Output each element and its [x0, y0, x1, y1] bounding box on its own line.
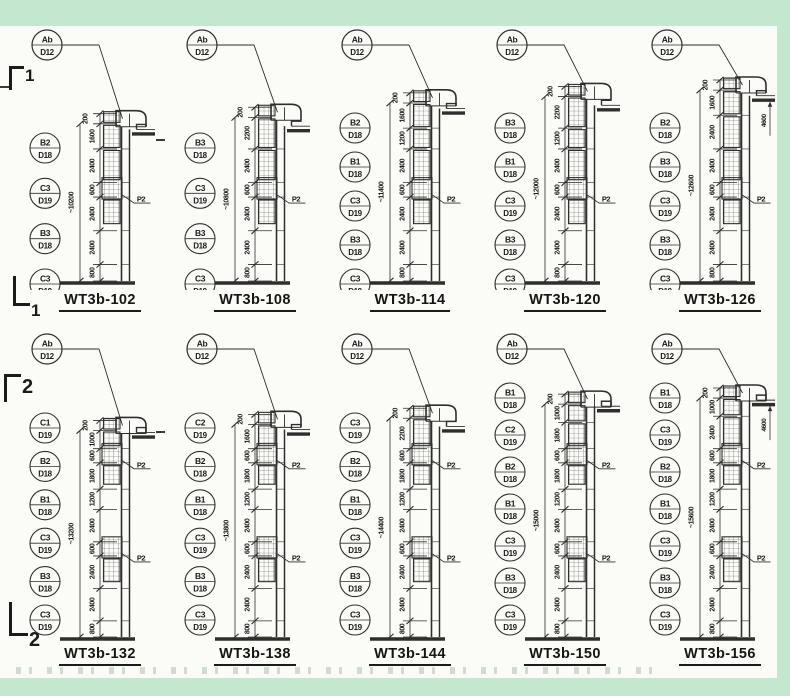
cutoff-text-remnant [16, 667, 656, 674]
dimension-text: 2400 [90, 206, 97, 220]
dimension-text: 1800 [400, 468, 407, 482]
dimension-text: 2400 [90, 158, 97, 172]
dimension-text: 600 [710, 450, 717, 461]
dimension-text: 2400 [90, 597, 97, 611]
grid-label-top-line2: D12 [195, 48, 209, 57]
hatched-block [724, 400, 741, 415]
dimension-text: 2400 [710, 240, 717, 254]
hatched-sill-block [412, 537, 432, 558]
hatched-block [724, 200, 741, 224]
bubble-leader [372, 349, 433, 413]
scanned-drawing-sheet: 1 1 2 2 2001600240060024002400800~10200P… [0, 0, 790, 696]
grid-label-left-line2: D18 [658, 131, 672, 140]
dimension-text: 2400 [245, 518, 252, 532]
dimension-text: 1200 [400, 131, 407, 145]
detail-label-p2: P2 [602, 553, 611, 562]
dimension-text: 200 [548, 86, 555, 97]
grid-label-left-line1: C3 [350, 610, 361, 620]
dimension-text: 2400 [555, 597, 562, 611]
grid-label-left-line2: D18 [658, 586, 672, 595]
dimension-text: 200 [238, 107, 245, 118]
grid-label-left-line1: C3 [505, 274, 516, 284]
hatched-sill-block [257, 537, 277, 558]
hatched-block [569, 559, 586, 582]
grid-label-left-line2: D18 [503, 170, 517, 179]
grid-label-top-line1: Ab [42, 35, 53, 45]
detail-label-p2: P2 [447, 460, 456, 469]
hatched-sill-block [722, 178, 742, 199]
grid-label-left-line2: D18 [658, 170, 672, 179]
hatched-block [259, 412, 276, 423]
dimension-text: 2400 [245, 597, 252, 611]
detail-label-p2: P2 [137, 460, 146, 469]
dimension-text: 800 [245, 267, 252, 278]
hatched-sill-block [412, 178, 432, 199]
dimension-text: 2400 [90, 565, 97, 579]
diagram-title: WT3b-108 [180, 292, 330, 312]
grid-label-left-line2: D19 [193, 431, 207, 440]
grid-label-left-line1: B3 [350, 571, 361, 581]
dimension-text: 2400 [710, 518, 717, 532]
grid-label-left-line1: B3 [660, 157, 671, 167]
grid-label-left-line1: C3 [505, 536, 516, 546]
detail-label-p2: P2 [137, 553, 146, 562]
grid-label-left-line2: D18 [503, 131, 517, 140]
grid-label-left-line2: D19 [348, 431, 362, 440]
dimension-text: 1600 [245, 429, 252, 443]
dimension-text: 1800 [555, 428, 562, 442]
diagram-title-text: WT3b-138 [214, 646, 296, 666]
section-drawing: 2001600240060024002400800~10200P2AbD12B2… [3, 28, 155, 290]
dimension-text: 600 [90, 543, 97, 554]
dimension-text: 2400 [555, 565, 562, 579]
hatched-sill-block [722, 537, 742, 558]
detail-label-p2: P2 [602, 460, 611, 469]
dimension-text: 2400 [245, 565, 252, 579]
grid-label-left-line2: D19 [38, 623, 52, 632]
grid-label-left-line2: D19 [38, 546, 52, 555]
dimension-text: 1200 [245, 492, 252, 506]
grid-label-top-line2: D12 [505, 48, 519, 57]
grid-label-left-line2: D18 [348, 508, 362, 517]
grid-label-left-line2: D19 [193, 287, 207, 290]
dimension-text: 2400 [400, 597, 407, 611]
hatched-block [414, 130, 431, 148]
dimension-text: 600 [400, 543, 407, 554]
hatched-block [104, 418, 121, 429]
grid-label-left-line1: C3 [350, 196, 361, 206]
grid-label-left-line2: D18 [658, 401, 672, 410]
hatched-block [569, 424, 586, 446]
grid-label-top-line2: D12 [195, 352, 209, 361]
bubble-leader [62, 45, 123, 119]
diagram-title: WT3b-138 [180, 646, 330, 666]
dimension-text: 1600 [400, 108, 407, 122]
dimension-text: 800 [710, 623, 717, 634]
dimension-text: 200 [83, 420, 90, 431]
hatched-block [104, 125, 121, 147]
hatched-block [104, 112, 121, 123]
grid-label-left-line1: B1 [350, 494, 361, 504]
dimension-text: 1200 [555, 131, 562, 145]
hatched-block [259, 200, 276, 224]
detail-label-p2: P2 [292, 195, 301, 204]
section-drawing: 200220060018001200240060024002400800~144… [313, 332, 465, 644]
grid-label-left-line2: D18 [503, 512, 517, 521]
dimension-text: 2400 [245, 158, 252, 172]
grid-label-left-line1: B1 [350, 157, 361, 167]
hatched-block [724, 78, 741, 89]
hatched-sill-block [412, 444, 432, 465]
hatched-block [414, 559, 431, 582]
diagram-title: WT3b-150 [490, 646, 640, 666]
dimension-text: 600 [400, 450, 407, 461]
grid-label-left-line2: D18 [193, 151, 207, 160]
hatched-block [569, 130, 586, 148]
grid-label-left-line2: D19 [658, 287, 672, 290]
hatched-block [104, 466, 121, 484]
grid-label-left-line1: C3 [505, 196, 516, 206]
hatched-block [569, 150, 586, 179]
detail-label-p2: P2 [602, 195, 611, 204]
grid-label-left-line1: B3 [40, 228, 51, 238]
grid-label-top-line2: D12 [40, 352, 54, 361]
grid-label-left-line1: C1 [40, 418, 51, 428]
grid-label-left-line2: D19 [503, 438, 517, 447]
dimension-text: 2400 [710, 597, 717, 611]
hatched-block [569, 392, 586, 403]
grid-label-left-line1: C3 [660, 274, 671, 284]
grid-label-left-line2: D18 [193, 242, 207, 251]
hatched-block [724, 150, 741, 179]
section-diagram-WT3b-132: 200100060018001200240060024002400800~132… [3, 332, 155, 676]
grid-label-top-line2: D12 [660, 48, 674, 57]
section-drawing: 20016001200240060024002400800~11400P2AbD… [313, 28, 465, 290]
dimension-text: 800 [555, 267, 562, 278]
grid-label-top-line2: D12 [350, 48, 364, 57]
dimension-text: 2400 [710, 125, 717, 139]
section-diagram-WT3b-150: 2001000180060018001200240060024002400800… [468, 332, 620, 676]
dimension-text: 2400 [400, 206, 407, 220]
hatched-block [569, 466, 586, 484]
dimension-text: 1200 [90, 492, 97, 506]
grid-label-left-line2: D19 [503, 209, 517, 218]
detail-label-p2: P2 [137, 195, 146, 204]
dimension-text: 1000 [90, 432, 97, 446]
detail-label-p2: P2 [757, 553, 766, 562]
hatched-block [569, 406, 586, 421]
overall-dimension-text: ~13200 [69, 523, 76, 545]
dimension-text: 200 [238, 414, 245, 425]
grid-label-left-line1: B1 [40, 494, 51, 504]
hatched-block [724, 559, 741, 582]
grid-label-top-line1: Ab [352, 35, 363, 45]
hatched-block [104, 559, 121, 582]
grid-label-left-line1: B3 [660, 235, 671, 245]
detail-label-p2: P2 [447, 195, 456, 204]
grid-label-left-line1: B1 [660, 388, 671, 398]
hatched-block [104, 150, 121, 179]
hatched-block [569, 84, 586, 95]
grid-label-left-line1: C3 [350, 533, 361, 543]
grid-label-left-line1: C3 [195, 274, 206, 284]
hatched-sill-block [722, 444, 742, 465]
grid-label-left-line1: B3 [505, 573, 516, 583]
bubble-leader [62, 349, 123, 425]
hatched-block [259, 150, 276, 179]
section-drawing: 2002200240060024002400800~10800P2AbD12B3… [158, 28, 310, 290]
grid-label-left-line2: D18 [38, 151, 52, 160]
grid-label-left-line2: D18 [348, 248, 362, 257]
dimension-text: 600 [245, 184, 252, 195]
grid-label-left-line1: B2 [40, 456, 51, 466]
grid-label-top-line1: Ab [197, 35, 208, 45]
dimension-text: 1800 [245, 468, 252, 482]
diagram-title: WT3b-132 [25, 646, 175, 666]
hatched-block [569, 200, 586, 224]
grid-label-left-line2: D19 [658, 438, 672, 447]
dimension-text: 200 [703, 79, 710, 90]
dimension-text: 2400 [555, 158, 562, 172]
section-diagram-WT3b-126: 20016002400240060024002400800~12600P2460… [623, 28, 775, 328]
grid-label-left-line1: B2 [660, 118, 671, 128]
grid-label-left-line2: D18 [658, 475, 672, 484]
dimension-text: 800 [90, 623, 97, 634]
hatched-block [414, 200, 431, 224]
diagram-title-text: WT3b-132 [59, 646, 141, 666]
diagram-row-2: 200100060018001200240060024002400800~132… [3, 332, 775, 676]
grid-label-left-line2: D19 [38, 431, 52, 440]
grid-label-left-line1: C2 [195, 418, 206, 428]
section-diagram-WT3b-156: 2001000240060018001200240060024002400800… [623, 332, 775, 676]
section-diagram-WT3b-108: 2002200240060024002400800~10800P2AbD12B3… [158, 28, 310, 328]
hatched-sill-block [567, 178, 587, 199]
dimension-text: 600 [710, 543, 717, 554]
right-dimension-text: 4600 [761, 418, 768, 432]
grid-label-left-line1: C3 [40, 274, 51, 284]
overall-dimension-text: ~12600 [689, 174, 696, 196]
grid-label-left-line2: D18 [193, 469, 207, 478]
dimension-text: 600 [90, 184, 97, 195]
dimension-text: 600 [555, 184, 562, 195]
hatched-block [414, 150, 431, 179]
grid-label-left-line2: D18 [503, 248, 517, 257]
grid-label-left-line2: D19 [348, 209, 362, 218]
detail-label-p2: P2 [292, 460, 301, 469]
dimension-text: 200 [83, 113, 90, 124]
grid-label-top-line1: Ab [507, 35, 518, 45]
grid-label-left-line2: D18 [193, 508, 207, 517]
dimension-text: 600 [400, 184, 407, 195]
dimension-text: 2400 [555, 206, 562, 220]
dimension-text: 200 [393, 408, 400, 419]
grid-label-left-line2: D19 [193, 546, 207, 555]
hatched-block [724, 466, 741, 484]
hatched-sill-block [567, 537, 587, 558]
grid-label-left-line1: B3 [195, 228, 206, 238]
section-diagram-WT3b-114: 20016001200240060024002400800~11400P2AbD… [313, 28, 465, 328]
grid-label-left-line2: D18 [348, 131, 362, 140]
hatched-sill-block [102, 537, 122, 558]
overall-dimension-text: ~13800 [224, 520, 231, 542]
diagram-title: WT3b-114 [335, 292, 485, 312]
dimension-text: 600 [245, 450, 252, 461]
parapet-step [292, 120, 302, 126]
grid-label-left-line1: C3 [195, 533, 206, 543]
right-dimension-text: 4600 [761, 113, 768, 127]
hatched-block [259, 105, 276, 116]
dimension-text: 800 [400, 623, 407, 634]
hatched-block [414, 406, 431, 417]
grid-label-top-line1: Ab [662, 35, 673, 45]
grid-label-left-line1: B2 [195, 456, 206, 466]
grid-label-left-line1: C3 [350, 418, 361, 428]
dimension-text: 2400 [400, 240, 407, 254]
grid-label-left-line1: C3 [40, 610, 51, 620]
diagram-title-text: WT3b-150 [524, 646, 606, 666]
grid-label-left-line2: D19 [348, 623, 362, 632]
grid-label-left-line1: C3 [660, 610, 671, 620]
hatched-block [259, 559, 276, 582]
dimension-text: 1600 [90, 129, 97, 143]
grid-label-left-line1: B3 [505, 235, 516, 245]
dimension-text: 600 [245, 543, 252, 554]
grid-label-left-line1: C3 [350, 274, 361, 284]
diagram-title: WT3b-102 [25, 292, 175, 312]
grid-label-top-line1: Ab [662, 339, 673, 349]
grid-label-left-line1: C3 [195, 183, 206, 193]
hatched-block [259, 466, 276, 484]
grid-label-left-line1: C3 [195, 610, 206, 620]
bottom-margin-band [0, 678, 790, 696]
grid-label-top-line2: D12 [350, 352, 364, 361]
dimension-text: 800 [710, 267, 717, 278]
dimension-text: 2400 [400, 565, 407, 579]
parapet-step [447, 421, 457, 426]
diagram-title-text: WT3b-102 [59, 292, 141, 312]
hatched-block [259, 119, 276, 148]
overall-dimension-text: ~12000 [534, 178, 541, 200]
diagram-title-text: WT3b-156 [679, 646, 761, 666]
dimension-text: 1800 [555, 468, 562, 482]
diagram-title: WT3b-126 [645, 292, 790, 312]
grid-label-left-line1: C3 [660, 425, 671, 435]
grid-label-left-line1: B3 [350, 235, 361, 245]
dimension-text: 200 [548, 393, 555, 404]
hatched-block [104, 200, 121, 224]
grid-label-left-line1: B3 [40, 571, 51, 581]
overall-dimension-text: ~15600 [689, 506, 696, 528]
grid-label-left-line2: D18 [503, 586, 517, 595]
top-margin-band [0, 0, 790, 26]
grid-label-left-line1: B1 [660, 499, 671, 509]
dimension-text: 2400 [90, 518, 97, 532]
dimension-text: 1800 [710, 468, 717, 482]
dimension-text: 2400 [400, 518, 407, 532]
hatched-block [414, 466, 431, 484]
diagram-title: WT3b-144 [335, 646, 485, 666]
grid-label-top-line1: Ab [507, 339, 518, 349]
grid-label-left-line1: B2 [505, 462, 516, 472]
dimension-text: 2400 [555, 518, 562, 532]
dimension-text: 1800 [90, 468, 97, 482]
parapet-step [602, 99, 612, 105]
grid-label-left-line2: D19 [658, 549, 672, 558]
grid-label-top-line2: D12 [505, 352, 519, 361]
grid-label-left-line1: B1 [505, 388, 516, 398]
overall-dimension-text: ~14400 [379, 517, 386, 539]
dimension-text: 2200 [400, 426, 407, 440]
grid-label-left-line2: D19 [38, 287, 52, 290]
grid-label-top-line2: D12 [660, 352, 674, 361]
grid-label-left-line1: B3 [660, 573, 671, 583]
grid-label-left-line2: D18 [38, 242, 52, 251]
dimension-text: 200 [393, 92, 400, 103]
bubble-leader [372, 45, 433, 98]
section-diagram-WT3b-144: 200220060018001200240060024002400800~144… [313, 332, 465, 676]
section-drawing: 2001000180060018001200240060024002400800… [468, 332, 620, 644]
grid-label-left-line2: D19 [348, 546, 362, 555]
grid-label-top-line1: Ab [352, 339, 363, 349]
grid-label-left-line2: D18 [658, 248, 672, 257]
grid-label-left-line1: C3 [40, 533, 51, 543]
grid-label-left-line2: D18 [348, 170, 362, 179]
dimension-text: 1000 [555, 406, 562, 420]
overall-dimension-text: ~11400 [379, 181, 386, 202]
bubble-leader [217, 45, 278, 112]
dimension-text: 800 [90, 267, 97, 278]
grid-label-left-line2: D19 [38, 196, 52, 205]
grid-label-left-line2: D19 [503, 549, 517, 558]
section-drawing: 2001000240060018001200240060024002400800… [623, 332, 775, 644]
diagram-title: WT3b-120 [490, 292, 640, 312]
dimension-text: 600 [90, 450, 97, 461]
dimension-text: 800 [245, 623, 252, 634]
overall-dimension-text: ~10200 [69, 191, 76, 213]
dimension-text: 1600 [710, 95, 717, 109]
grid-label-left-line2: D18 [348, 469, 362, 478]
grid-label-left-line1: B1 [195, 494, 206, 504]
grid-label-left-line2: D18 [503, 401, 517, 410]
hatched-block [724, 418, 741, 446]
hatched-block [414, 91, 431, 102]
section-diagram-WT3b-120: 20022001200240060024002400800~12000P2AbD… [468, 28, 620, 328]
grid-label-left-line1: B3 [195, 571, 206, 581]
grid-label-top-line1: Ab [197, 339, 208, 349]
dimension-text: 2200 [245, 126, 252, 140]
grid-label-left-line1: B2 [350, 456, 361, 466]
grid-label-left-line2: D19 [503, 287, 517, 290]
grid-label-left-line2: D18 [503, 475, 517, 484]
diagram-title: WT3b-156 [645, 646, 790, 666]
hatched-block [724, 386, 741, 397]
dimension-text: 1200 [710, 492, 717, 506]
dimension-text: 2400 [245, 240, 252, 254]
grid-label-left-line1: C2 [505, 425, 516, 435]
dimension-text: 600 [555, 543, 562, 554]
grid-label-top-line2: D12 [40, 48, 54, 57]
grid-label-left-line1: B2 [40, 138, 51, 148]
hatched-block [724, 92, 741, 114]
grid-label-left-line2: D18 [38, 469, 52, 478]
detail-label-p2: P2 [447, 553, 456, 562]
diagram-title-text: WT3b-144 [369, 646, 451, 666]
dimension-text: 2400 [710, 425, 717, 439]
section-drawing: 200160060018001200240060024002400800~138… [158, 332, 310, 644]
dimension-text: 2400 [555, 240, 562, 254]
dimension-text: 1200 [555, 492, 562, 506]
section-drawing: 20016002400240060024002400800~12600P2460… [623, 28, 775, 290]
